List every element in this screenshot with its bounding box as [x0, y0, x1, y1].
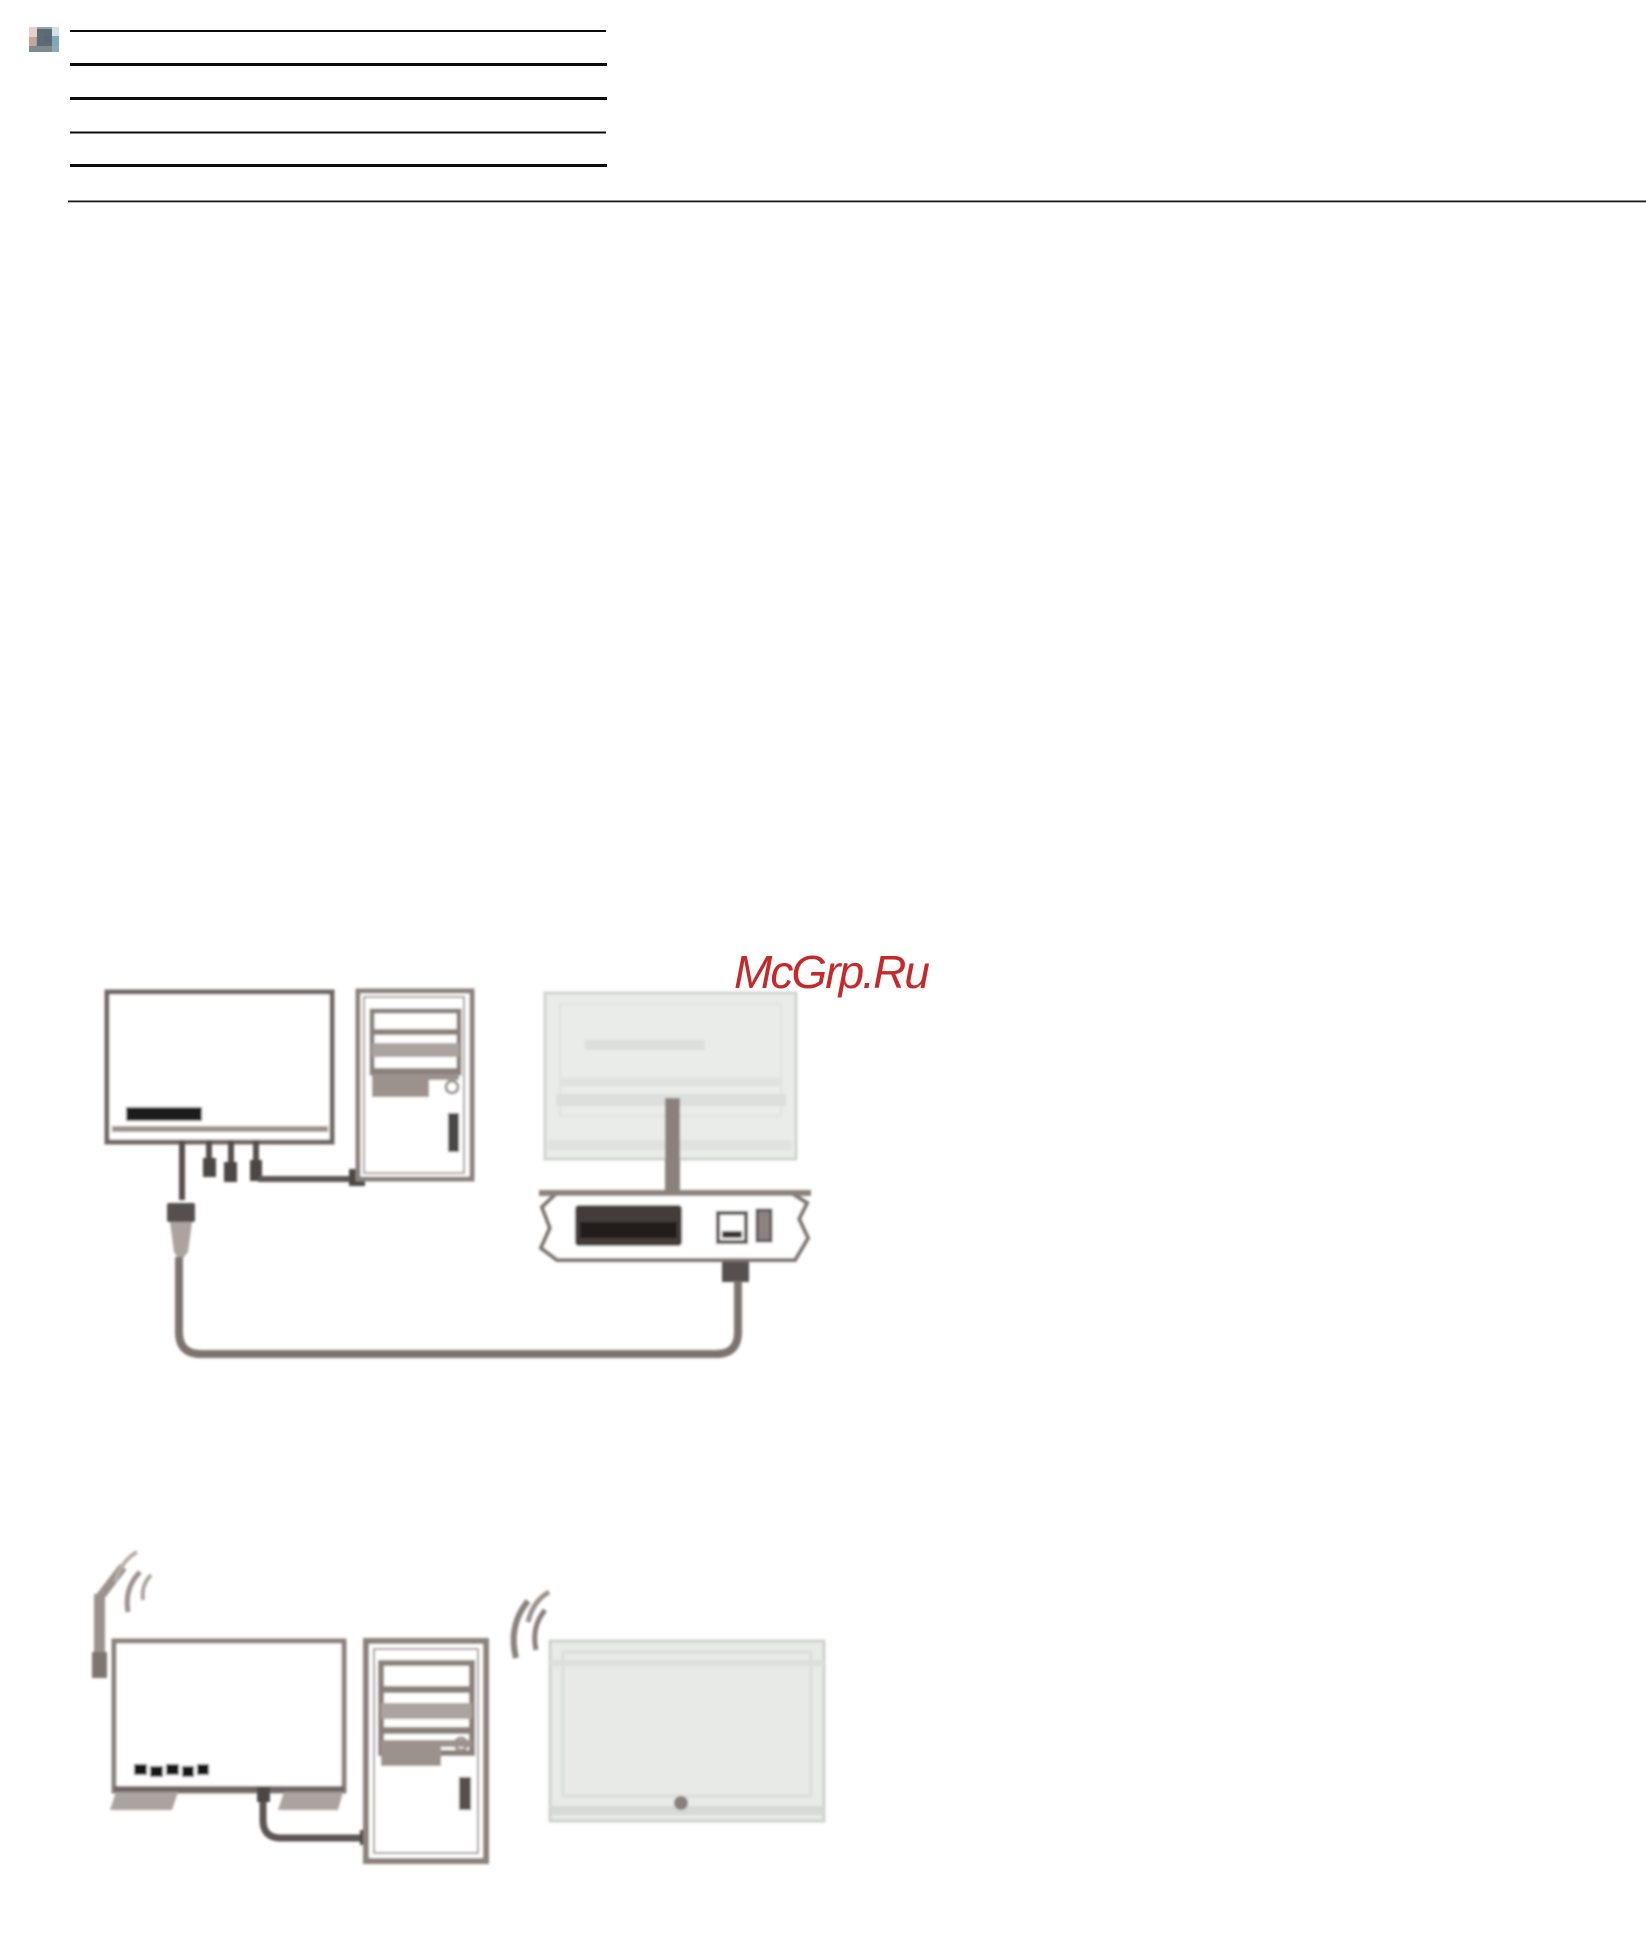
svg-text:McGrp.Ru: McGrp.Ru	[734, 946, 930, 998]
